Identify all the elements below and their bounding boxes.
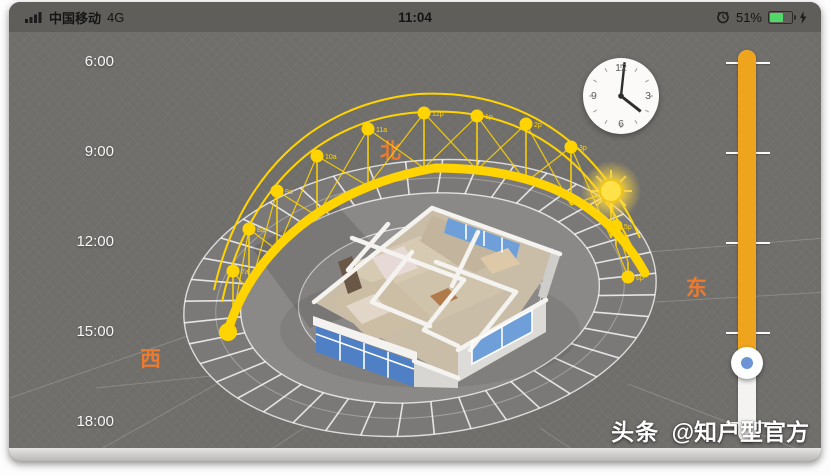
hour-marker-label: 9a — [285, 189, 293, 196]
hour-marker-ball — [362, 123, 375, 136]
ground-line — [85, 372, 238, 458]
clock-numeral-3: 3 — [645, 90, 651, 102]
slider-thumb[interactable] — [731, 347, 763, 379]
battery-icon — [768, 11, 793, 24]
alarm-clock-icon — [716, 10, 730, 24]
clock-numeral-6: 6 — [618, 118, 624, 130]
hour-marker-label: 12p — [432, 111, 444, 118]
slider-elapsed-fill — [738, 50, 756, 363]
hour-marker-label: 1p — [485, 114, 493, 121]
stage-front-edge — [9, 448, 821, 461]
analog-clock-widget: 12 3 6 9 — [583, 58, 659, 134]
hour-marker-label: 5p — [624, 224, 632, 231]
app-screenshot-frame: 北7a8a9a10a11a12p1p2p3p5p6p西东 中国移动 4G 11:… — [9, 2, 821, 461]
watermark: 头条 @知户型官方 — [611, 413, 809, 447]
hour-hand — [621, 96, 641, 111]
hour-marker-ball — [243, 223, 256, 236]
hour-marker-ball — [610, 220, 623, 233]
compass-east-label: 东 — [686, 276, 707, 300]
hour-marker-ball — [418, 107, 431, 120]
status-right: 51% — [716, 10, 821, 25]
compass-west-label: 西 — [140, 348, 161, 371]
hour-marker-ball — [622, 271, 635, 284]
hour-marker-label: 11a — [376, 127, 387, 134]
charging-bolt-icon — [799, 11, 807, 24]
hour-marker-ball — [227, 265, 240, 278]
3d-viewport[interactable]: 北7a8a9a10a11a12p1p2p3p5p6p西东 — [9, 2, 821, 460]
watermark-brand: 头条 — [611, 419, 659, 445]
status-bar: 中国移动 4G 11:04 51% — [9, 2, 821, 32]
status-time: 11:04 — [9, 10, 821, 25]
slider-track[interactable] — [738, 50, 756, 442]
hour-marker-ball — [471, 110, 484, 123]
watermark-handle: @知户型官方 — [672, 419, 809, 445]
hour-marker-label: 7a — [241, 269, 249, 276]
hour-marker-label: 2p — [534, 122, 542, 129]
ground-line — [10, 330, 205, 398]
slider-thumb-dot — [741, 357, 753, 369]
hour-marker-ball — [311, 150, 324, 163]
ground-line — [648, 238, 821, 252]
battery-percent: 51% — [736, 10, 762, 25]
hour-marker-label: 10a — [325, 154, 337, 161]
hour-marker-label: 8a — [257, 227, 265, 234]
clock-numeral-12: 12 — [615, 62, 627, 74]
hour-marker-ball — [271, 185, 284, 198]
hour-marker-ball — [565, 141, 578, 154]
clock-numeral-9: 9 — [591, 90, 597, 102]
hour-marker-label: 6p — [636, 275, 644, 282]
hour-marker-label: 3p — [579, 145, 587, 152]
horizon-marker-ball — [219, 323, 237, 341]
compass-north-label: 北 — [380, 140, 401, 163]
hour-marker-ball — [520, 118, 533, 131]
sun-icon[interactable] — [600, 180, 622, 202]
